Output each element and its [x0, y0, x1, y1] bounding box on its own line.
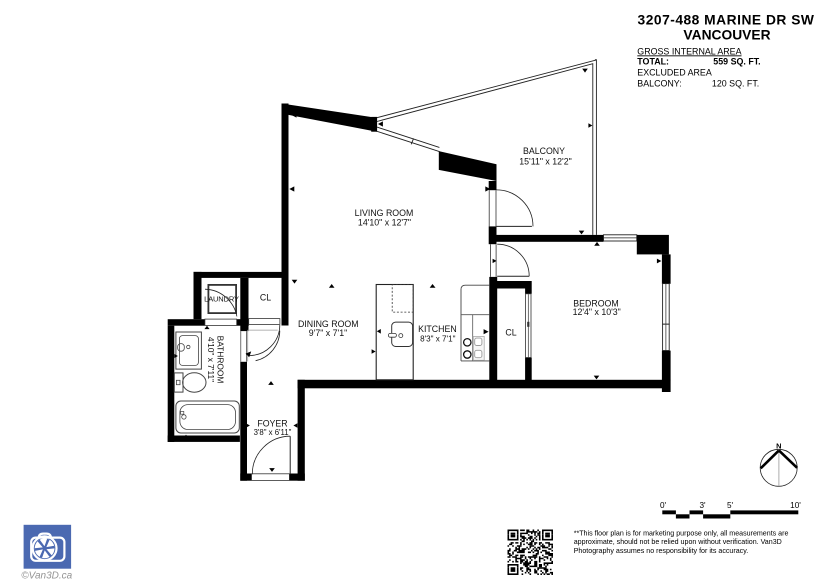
svg-text:GROSS INTERNAL AREA: GROSS INTERNAL AREA: [637, 46, 741, 56]
svg-text:BALCONY: BALCONY: [523, 146, 565, 156]
svg-text:TOTAL:: TOTAL:: [637, 57, 669, 67]
svg-text:3207-488 MARINE DR SW: 3207-488 MARINE DR SW: [638, 13, 815, 28]
svg-text:0': 0': [660, 501, 667, 510]
svg-text:CL: CL: [505, 328, 516, 338]
svg-text:KITCHEN: KITCHEN: [418, 324, 457, 334]
svg-text:CL: CL: [260, 293, 271, 303]
svg-text:BALCONY:: BALCONY:: [637, 79, 681, 89]
svg-text:N: N: [776, 441, 781, 450]
svg-text:14'10" x 12'7": 14'10" x 12'7": [358, 217, 411, 227]
svg-text:15'11" x 12'2": 15'11" x 12'2": [519, 157, 572, 167]
svg-text:BATHROOM4'10" x 7'11": BATHROOM4'10" x 7'11": [206, 336, 225, 384]
svg-text:9'7" x 7'1": 9'7" x 7'1": [309, 328, 347, 338]
svg-text:LAUNDRY: LAUNDRY: [204, 294, 239, 303]
svg-text:EXCLUDED AREA: EXCLUDED AREA: [637, 68, 712, 78]
svg-text:3'8" x 6'11": 3'8" x 6'11": [254, 428, 292, 437]
svg-text:VANCOUVER: VANCOUVER: [683, 28, 770, 43]
svg-text:FOYER: FOYER: [257, 419, 287, 429]
svg-text:10': 10': [790, 501, 801, 510]
svg-text:©Van3D.ca: ©Van3D.ca: [21, 571, 72, 582]
svg-text:8'3" x 7'1": 8'3" x 7'1": [420, 335, 456, 344]
svg-text:**This floor plan is for marke: **This floor plan is for marketing purpo…: [574, 529, 789, 537]
svg-text:approximate, should not be rel: approximate, should not be relied upon w…: [574, 538, 782, 546]
svg-text:5': 5': [727, 501, 734, 510]
svg-text:Photography assumes no respons: Photography assumes no responsibility fo…: [574, 547, 749, 555]
svg-text:12'4" x 10'3": 12'4" x 10'3": [573, 307, 621, 317]
svg-text:120 SQ. FT.: 120 SQ. FT.: [712, 79, 759, 89]
svg-text:3': 3': [699, 501, 706, 510]
svg-text:559 SQ. FT.: 559 SQ. FT.: [713, 57, 760, 67]
